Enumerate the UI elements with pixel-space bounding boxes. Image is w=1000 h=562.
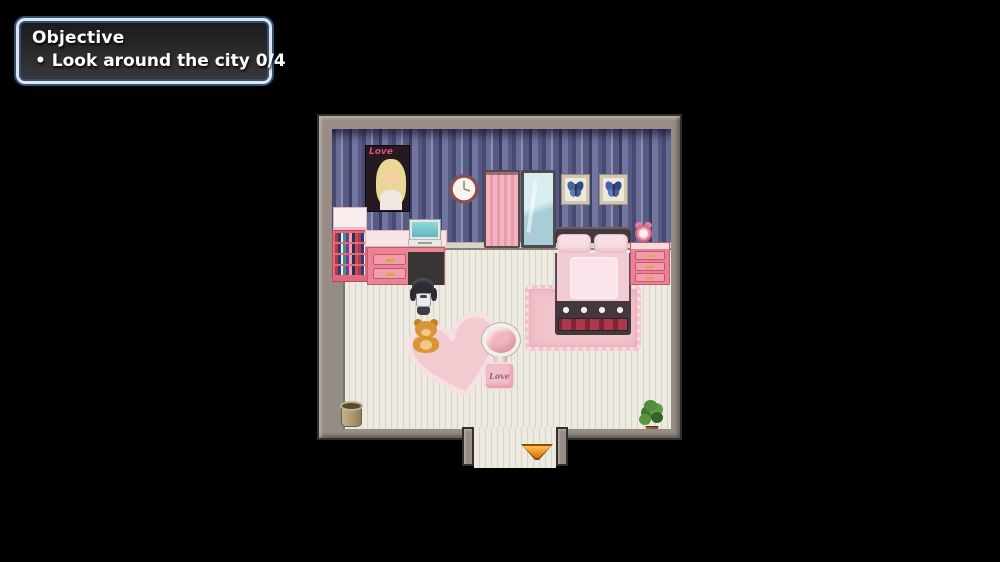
butterfly-frame-icon [562,175,589,204]
poster-girl-shirt [380,190,402,210]
bed-blanket [555,253,631,303]
love-cushion-text: Love [489,371,510,381]
desk-drawer[interactable] [373,268,406,279]
game-map-room[interactable]: Love [317,114,682,470]
pillow [557,234,591,253]
footboard-ornament [557,305,629,316]
poster-title-text: Love [369,147,393,157]
room-interior[interactable]: Love [332,129,671,429]
pillow [594,234,628,253]
bookshelf-icon[interactable] [332,230,368,282]
laptop-icon[interactable] [410,220,440,239]
laptop-base [408,239,442,247]
player-skirt [417,307,430,315]
alarm-body [635,225,652,242]
full-length-mirror[interactable] [521,170,556,248]
book-row [335,244,365,253]
nightstand-top [631,243,669,249]
potted-plant-icon[interactable] [638,400,666,429]
wall-cabinet [333,207,367,230]
plant-pot [645,426,659,429]
butterfly-frame-icon [600,175,627,204]
teddy-belly [420,340,432,350]
poster-girl-face [382,170,399,185]
wall-clock-icon [449,174,479,204]
book-row [335,233,365,242]
footboard-base [558,318,628,331]
corridor-wall-left [462,427,474,466]
love-cushion-icon[interactable]: Love [484,362,515,390]
alarm-clock-icon [634,223,653,243]
nightstand-icon[interactable] [630,242,670,285]
lace-pattern [570,257,618,299]
nightstand-drawer [635,251,665,260]
plant-leaf [644,400,657,411]
trash-can-icon[interactable] [340,401,364,428]
objective-item: • Look around the city 0/4 [32,51,257,71]
nightstand-drawer [635,273,665,282]
objective-panel: Objective • Look around the city 0/4 [16,18,272,84]
teddy-muzzle [421,329,431,336]
plant-leaf [651,412,663,423]
magazine-poster-icon: Love [365,145,410,212]
corridor-wall-right [556,427,568,466]
desk-drawer[interactable] [373,254,406,265]
bed-icon[interactable] [555,227,631,337]
plant-leaf [639,414,651,425]
pink-curtain[interactable] [484,170,520,248]
round-table-icon[interactable] [482,323,520,357]
objective-title: Objective [32,28,257,48]
teddy-bear-icon[interactable] [412,319,440,354]
trash-rim [340,401,363,411]
book-row [335,266,365,275]
room-wall-frame: Love [317,114,682,440]
bed-footboard [555,301,631,335]
book-row [335,255,365,264]
nightstand-drawer [635,262,665,271]
player-character-icon[interactable] [410,278,437,318]
player-shirt [416,293,431,307]
